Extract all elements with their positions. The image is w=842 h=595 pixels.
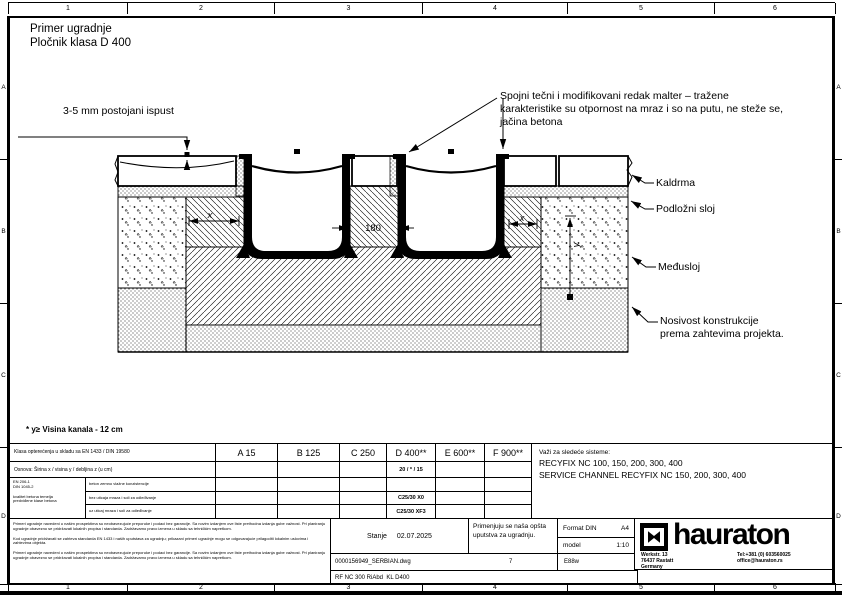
c1-b (277, 477, 339, 491)
c2-e (435, 491, 484, 504)
drawing-sheet: 1 2 3 4 5 6 1 2 3 4 5 6 A B C D A B C D (0, 0, 842, 595)
drawing-code-text: RF NC 300 RiAbd KL D400 (335, 575, 409, 581)
concrete-row3-text: uz uticaj mraza i soli za odleđivanje (89, 508, 152, 513)
norm-line4: predviđene klase betona (13, 499, 85, 504)
stanje-cell: Stanje 02.07.2025 (330, 518, 468, 553)
filename-cell: 0000156949_SERBIAN.dwg 7 (330, 553, 557, 570)
channel-2 (390, 149, 512, 259)
code-cell: E88w (557, 553, 634, 570)
page-title: Primer ugradnje Pločnik klasa D 400 (30, 22, 131, 50)
paving-blocks (115, 156, 632, 186)
table-norm-cell: EN 206-1 DIN 1045-2 kvalitet betona teme… (9, 477, 85, 518)
foundation-e600 (435, 461, 484, 477)
disclaimer-p3: Primeri ugradnje navedeni u našim prospe… (13, 551, 326, 561)
offset-note: 3-5 mm postojani ispust (63, 105, 174, 117)
format-value: A4 (621, 525, 629, 532)
systems-cell: Važi za sledeće sisteme: RECYFIX NC 100,… (531, 443, 834, 518)
table-foundation-label: Osnova: Širina x / visina y / debljina z… (9, 461, 215, 477)
concrete-row2-text: bez uticaja mraza i soli za odleđivanje (89, 495, 156, 500)
class-a15-text: A 15 (237, 448, 255, 458)
contact-block: Tel:+381 (0) 603560025 office@hauraton.r… (737, 552, 791, 564)
c2-d: C25/30 X0 (386, 491, 435, 504)
hauraton-logo-icon (640, 523, 668, 551)
general-note-cell: Primenjuju se naša opšta uputstva za ugr… (468, 518, 557, 553)
class-d400-text: D 400** (395, 448, 426, 458)
class-c250-text: C 250 (351, 448, 375, 458)
footnote: * y≥ Visina kanala - 12 cm (26, 425, 123, 434)
systems-line2: RECYFIX NC 100, 150, 200, 300, 400 (539, 457, 834, 469)
c3-f (484, 504, 531, 518)
foundation-b125 (277, 461, 339, 477)
foundation-c250 (339, 461, 386, 477)
load-class-text: Klasa opterećenja u skladu sa EN 1433 / … (14, 449, 130, 455)
dim-gap-180: 180 (365, 223, 381, 234)
empty-cell (637, 570, 834, 585)
c1-e (435, 477, 484, 491)
c2-b (277, 491, 339, 504)
concrete-row1-text: beton zemno vlažne konzistencije (89, 481, 149, 486)
systems-line3: SERVICE CHANNEL RECYFIX NC 150, 200, 300… (539, 469, 834, 481)
class-f900: F 900** (484, 443, 531, 461)
title-line1: Primer ugradnje (30, 22, 131, 36)
drawing-code-cell: RF NC 300 RiAbd KL D400 (330, 570, 637, 585)
c2-c (339, 491, 386, 504)
foundation-a15 (215, 461, 277, 477)
mortar-note-line3: jačina betona (500, 116, 830, 129)
c3-e (435, 504, 484, 518)
c2-d-text: C25/30 X0 (398, 495, 424, 501)
c3-d: C25/30 XF3 (386, 504, 435, 518)
c1-a (215, 477, 277, 491)
c1-d (386, 477, 435, 491)
disclaimer-p2: Kod ugradnje pridržavati se zahteva stan… (13, 537, 326, 547)
c3-d-text: C25/30 XF3 (396, 509, 425, 515)
label-nosivost-line1: Nosivost konstrukcije (660, 315, 784, 328)
class-b125-text: B 125 (297, 448, 321, 458)
c2-a (215, 491, 277, 504)
hauraton-wordmark: hauraton (673, 521, 789, 549)
contact-email: office@hauraton.rs (737, 558, 791, 564)
systems-line1: Važi za sledeće sisteme: (539, 448, 834, 457)
class-e600: E 600** (435, 443, 484, 461)
class-d400: D 400** (386, 443, 435, 461)
class-e600-text: E 600** (445, 448, 476, 458)
address-line3: Germany (641, 564, 673, 570)
mortar-note-line1: Spojni tečni i modifikovani redak malter… (500, 90, 830, 103)
channel-1 (236, 149, 358, 259)
note-line2: uputstva za ugradnju. (473, 532, 557, 541)
stanje-label: Stanje (367, 533, 387, 540)
label-podlozni-sloj: Podložni sloj (656, 203, 715, 215)
c3-a (215, 504, 277, 518)
c3-b (277, 504, 339, 518)
logo-cell: hauraton Werkstr. 13 76437 Rastatt Germa… (634, 518, 834, 570)
label-medjusloj: Međusloj (658, 261, 700, 273)
class-a15: A 15 (215, 443, 277, 461)
format-label: Format DIN (563, 525, 597, 532)
scale-label: model (563, 542, 581, 549)
class-b125: B 125 (277, 443, 339, 461)
c2-f (484, 491, 531, 504)
title-line2: Pločnik klasa D 400 (30, 36, 131, 50)
mortar-note-line2: karakteristike su otpornost na mraz i so… (500, 103, 830, 116)
table-load-class-label: Klasa opterećenja u skladu sa EN 1433 / … (9, 443, 215, 461)
scale-cell: model 1:10 (557, 537, 634, 553)
format-cell: Format DIN A4 (557, 518, 634, 537)
c1-c (339, 477, 386, 491)
foundation-f900 (484, 461, 531, 477)
foundation-text: Osnova: Širina x / visina y / debljina z… (14, 467, 112, 473)
concrete-row1-label: beton zemno vlažne konzistencije (85, 477, 215, 491)
c3-c (339, 504, 386, 518)
label-kaldrma: Kaldrma (656, 177, 695, 189)
label-nosivost: Nosivost konstrukcije prema zahtevima pr… (660, 315, 784, 341)
c1-f (484, 477, 531, 491)
class-c250: C 250 (339, 443, 386, 461)
address-block: Werkstr. 13 76437 Rastatt Germany (641, 552, 673, 570)
scale-value: 1:10 (616, 542, 629, 549)
filename-text: 0000156949_SERBIAN.dwg (335, 559, 411, 565)
disclaimer-p1: Primeri ugradnje navedeni u našim prospe… (13, 522, 326, 532)
sheet-number: 7 (509, 559, 512, 565)
foundation-d400-text: 20 / * / 15 (399, 467, 423, 473)
mortar-note: Spojni tečni i modifikovani redak malter… (500, 90, 830, 129)
note-line1: Primenjuju se naša opšta (473, 523, 557, 532)
code-text: E88w (564, 559, 579, 565)
disclaimer-cell: Primeri ugradnje navedeni u našim prospe… (9, 518, 330, 585)
concrete-row3-label: uz uticaj mraza i soli za odleđivanje (85, 504, 215, 518)
concrete-row2-label: bez uticaja mraza i soli za odleđivanje (85, 491, 215, 504)
label-nosivost-line2: prema zahtevima projekta. (660, 328, 784, 341)
stanje-date: 02.07.2025 (397, 533, 432, 540)
class-f900-text: F 900** (493, 448, 523, 458)
foundation-d400: 20 / * / 15 (386, 461, 435, 477)
